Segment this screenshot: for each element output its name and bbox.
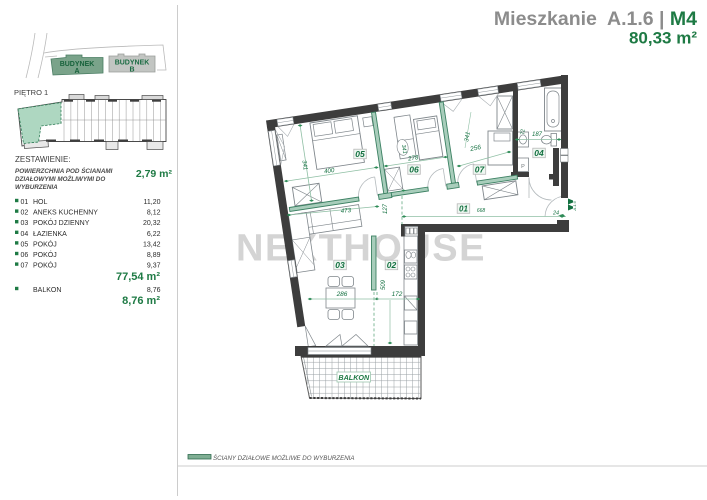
svg-text:72: 72 [521, 129, 527, 135]
svg-text:06: 06 [409, 165, 419, 175]
svg-text:ZESTAWIENIE:: ZESTAWIENIE: [15, 155, 71, 164]
svg-text:9,37: 9,37 [147, 263, 161, 270]
svg-text:04: 04 [534, 148, 544, 158]
svg-text:POKÓJ: POKÓJ [33, 250, 57, 259]
svg-text:03: 03 [335, 260, 345, 270]
svg-text:80,33 m²: 80,33 m² [629, 29, 697, 48]
svg-text:POKÓJ: POKÓJ [33, 239, 57, 248]
svg-text:20,32: 20,32 [143, 220, 161, 227]
svg-text:BUDYNEK: BUDYNEK [115, 60, 150, 67]
svg-text:ŁAZIENKA: ŁAZIENKA [33, 231, 67, 238]
svg-text:24: 24 [552, 211, 559, 217]
svg-text:POKÓJ DZIENNY: POKÓJ DZIENNY [33, 218, 90, 227]
svg-text:172: 172 [392, 291, 403, 298]
svg-text:04: 04 [21, 231, 29, 238]
svg-text:PIĘTRO 1: PIĘTRO 1 [14, 88, 48, 97]
svg-text:8,76 m²: 8,76 m² [122, 295, 160, 307]
svg-text:A.1.6: A.1.6 [572, 201, 577, 212]
svg-text:02: 02 [387, 260, 397, 270]
svg-text:ŚCIANY DZIAŁOWE MOŻLIWE DO WYB: ŚCIANY DZIAŁOWE MOŻLIWE DO WYBURZENIA [213, 455, 355, 462]
svg-text:ANEKS KUCHENNY: ANEKS KUCHENNY [33, 210, 98, 217]
svg-text:WYBURZENIA: WYBURZENIA [15, 184, 58, 191]
svg-text:07: 07 [475, 165, 486, 175]
svg-text:127: 127 [383, 203, 389, 214]
svg-text:341: 341 [464, 131, 472, 142]
svg-text:11,20: 11,20 [144, 199, 161, 206]
svg-text:HOL: HOL [33, 199, 48, 206]
svg-text:8,76: 8,76 [147, 287, 161, 294]
svg-text:BALKON: BALKON [338, 373, 370, 382]
svg-text:06: 06 [21, 252, 29, 259]
svg-text:256: 256 [469, 144, 482, 153]
svg-text:2,79 m²: 2,79 m² [136, 168, 173, 180]
svg-text:01: 01 [459, 204, 468, 213]
svg-text:509: 509 [381, 279, 387, 290]
svg-text:77,54 m²: 77,54 m² [116, 271, 160, 283]
svg-text:473: 473 [340, 207, 351, 215]
svg-text:BUDYNEK: BUDYNEK [60, 61, 95, 68]
svg-text:P: P [521, 164, 525, 170]
svg-text:05: 05 [21, 241, 29, 248]
svg-text:DZIAŁOWYMI MOŻLIWYMI DO: DZIAŁOWYMI MOŻLIWYMI DO [15, 175, 105, 183]
svg-text:03: 03 [21, 220, 29, 227]
svg-text:286: 286 [336, 291, 348, 298]
svg-text:6,22: 6,22 [147, 231, 161, 238]
svg-text:187: 187 [532, 132, 543, 138]
svg-text:B: B [129, 67, 134, 74]
svg-text:8,89: 8,89 [147, 252, 161, 259]
svg-text:BALKON: BALKON [33, 287, 61, 294]
svg-text:341: 341 [300, 160, 307, 171]
svg-text:01: 01 [21, 199, 29, 206]
svg-text:8,12: 8,12 [147, 210, 161, 217]
svg-text:POKÓJ: POKÓJ [33, 261, 57, 270]
svg-text:POWIERZCHNIA POD ŚCIANAMI: POWIERZCHNIA POD ŚCIANAMI [15, 166, 113, 175]
svg-text:668: 668 [477, 208, 486, 214]
svg-text:05: 05 [355, 149, 365, 159]
svg-text:07: 07 [21, 263, 29, 270]
svg-text:Mieszkanie A.1.6 | M4: Mieszkanie A.1.6 | M4 [494, 8, 697, 30]
svg-text:NEXTHOUSE: NEXTHOUSE [236, 228, 486, 270]
svg-text:13,42: 13,42 [143, 241, 161, 248]
svg-text:02: 02 [21, 210, 29, 217]
svg-text:A: A [74, 68, 79, 75]
